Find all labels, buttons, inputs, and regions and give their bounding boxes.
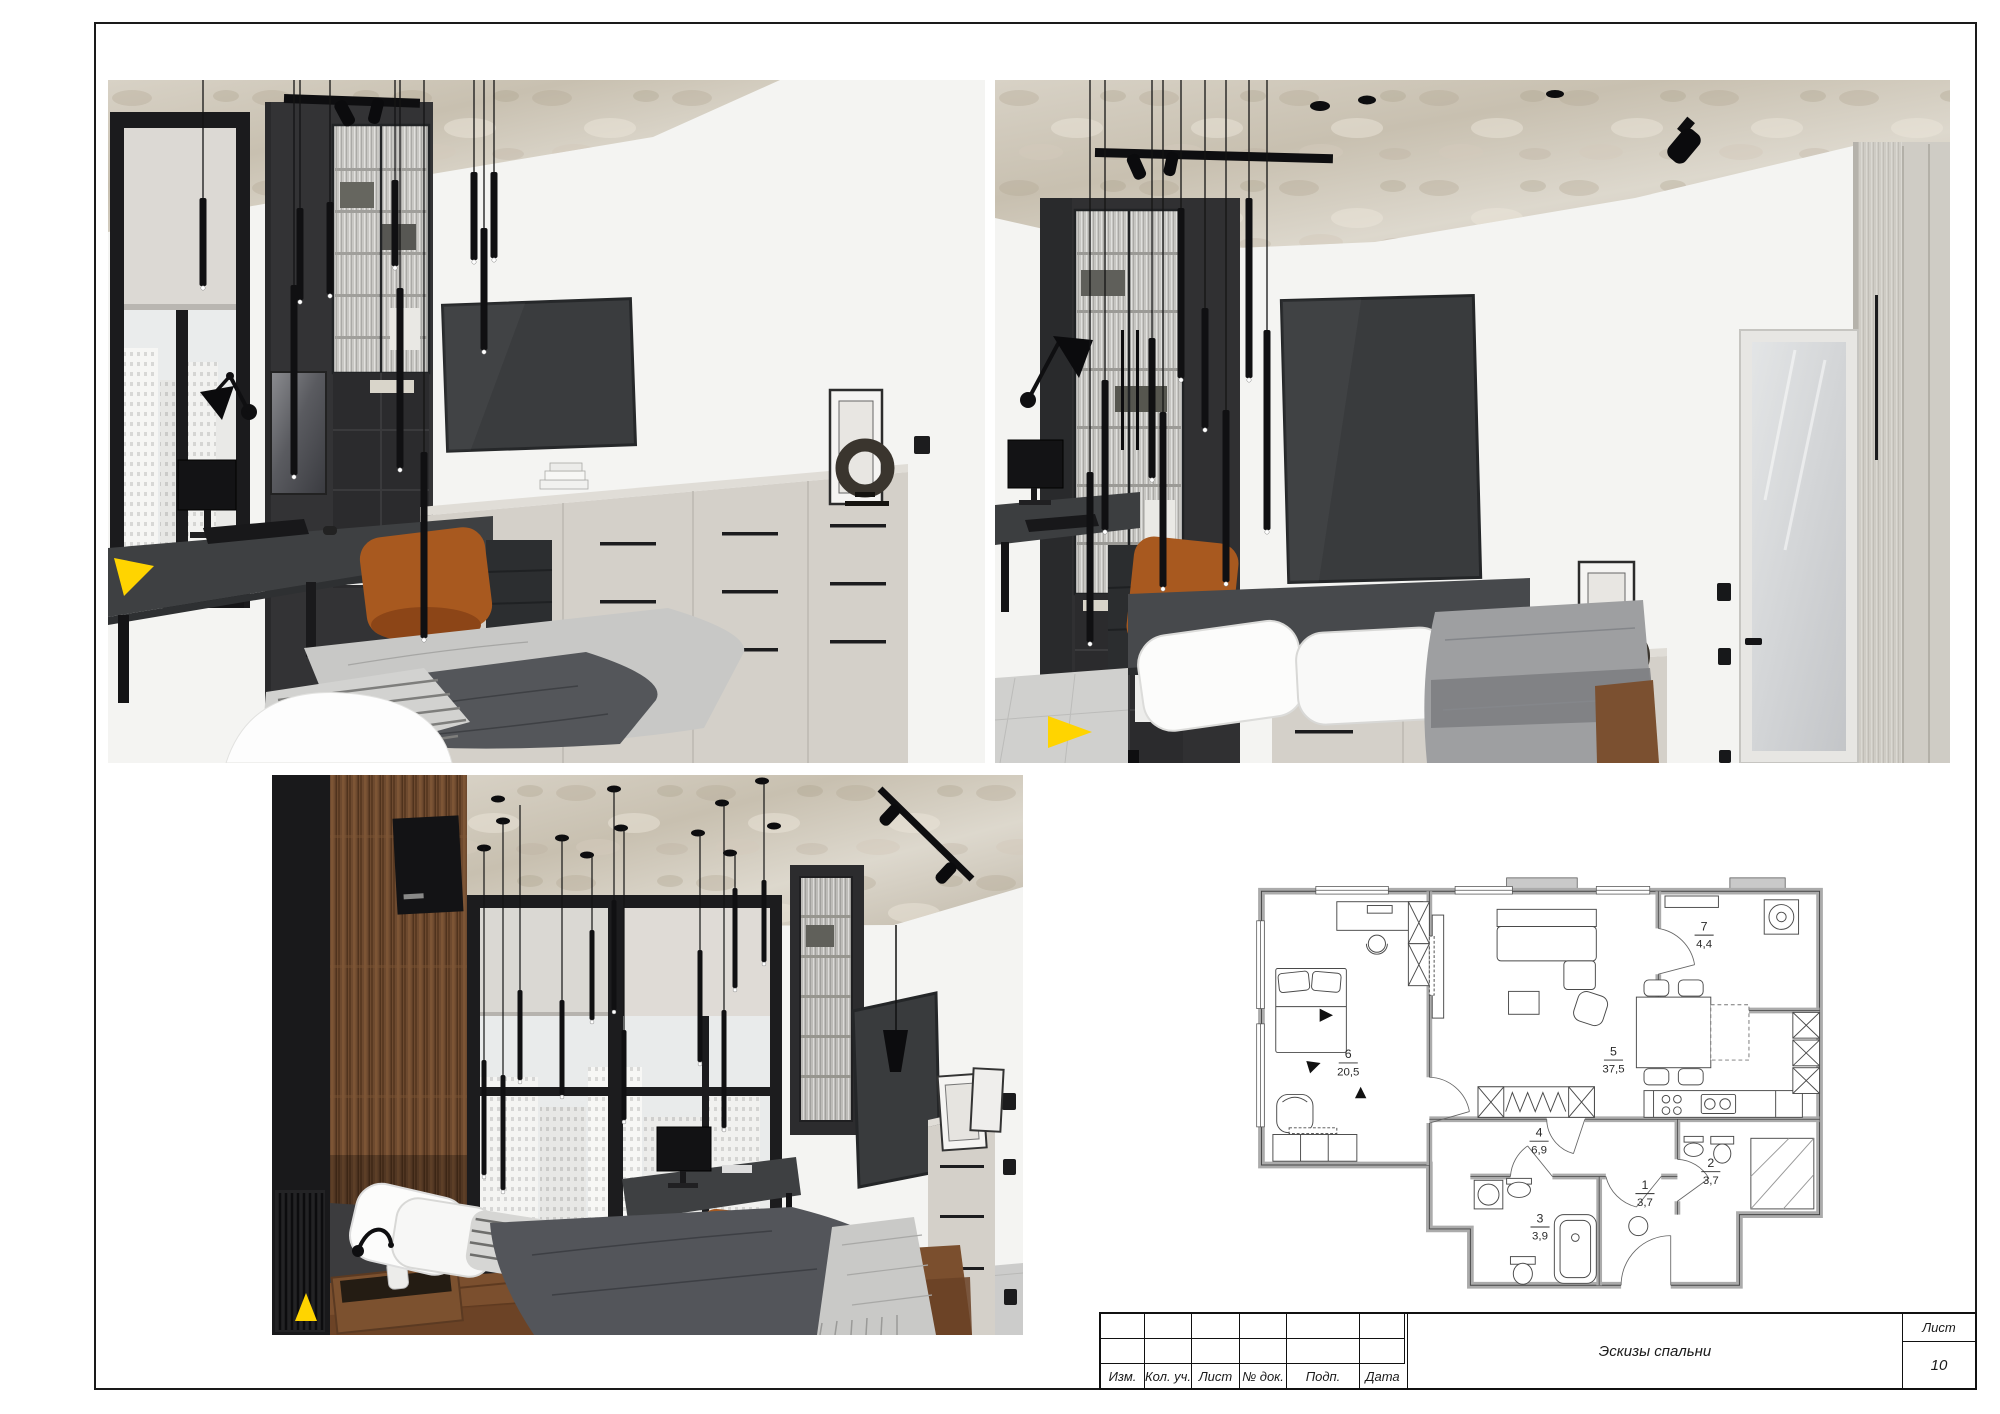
books-behind-glass [1081, 270, 1125, 296]
tb-cell [1101, 1314, 1145, 1339]
svg-text:20,5: 20,5 [1337, 1066, 1359, 1078]
tb-cell [1192, 1314, 1240, 1339]
svg-text:6,9: 6,9 [1531, 1145, 1547, 1157]
svg-text:4: 4 [1536, 1125, 1543, 1139]
svg-text:7: 7 [1701, 919, 1708, 933]
bookcase-edge [790, 865, 864, 1135]
tb-cell [1287, 1339, 1360, 1364]
svg-text:1: 1 [1642, 1178, 1649, 1192]
mirror-door [1740, 330, 1858, 763]
sheet-label: Лист [1903, 1314, 1975, 1342]
tb-col-doc: № док. [1240, 1364, 1287, 1388]
svg-text:3,9: 3,9 [1532, 1230, 1548, 1242]
tb-cell [1145, 1314, 1192, 1339]
light-switch [914, 436, 930, 454]
tb-cell [1240, 1339, 1287, 1364]
tb-cell [1360, 1339, 1405, 1364]
tv-panel [1281, 296, 1480, 583]
render-bedroom-view-3 [272, 775, 1023, 1335]
entry-furniture [1629, 1217, 1648, 1236]
svg-text:37,5: 37,5 [1602, 1063, 1624, 1075]
tb-cell [1101, 1339, 1145, 1364]
mouse [323, 526, 337, 535]
sheet-number: 10 [1903, 1342, 1975, 1388]
svg-text:4,4: 4,4 [1696, 939, 1713, 951]
tb-cell [1287, 1314, 1360, 1339]
svg-text:5: 5 [1610, 1044, 1617, 1058]
sheet-number-block: Лист 10 [1902, 1314, 1975, 1388]
black-column [272, 775, 330, 1335]
document-title: Эскизы спальни [1407, 1314, 1902, 1388]
tb-col-list: Лист [1192, 1364, 1240, 1388]
tb-col-data: Дата [1360, 1364, 1405, 1388]
svg-text:6: 6 [1345, 1047, 1352, 1061]
floor-plan: 6 20,5 5 37,5 7 4,4 4 6,9 3 3,9 2 3,7 [1243, 875, 1838, 1290]
render-bedroom-view-1 [108, 80, 985, 763]
wall-speaker [393, 815, 464, 914]
door-handle [1745, 638, 1762, 645]
tb-col-podp: Подп. [1287, 1364, 1360, 1388]
tb-cell [1360, 1314, 1405, 1339]
tb-cell [1192, 1339, 1240, 1364]
title-block: Изм. Кол. уч. Лист № док. Подп. Дата Эск… [1099, 1312, 1977, 1390]
tb-cell [1145, 1339, 1192, 1364]
wardrobe-panels [1853, 142, 1950, 763]
title-block-revision-grid: Изм. Кол. уч. Лист № док. Подп. Дата [1101, 1314, 1407, 1388]
svg-text:3,7: 3,7 [1703, 1175, 1719, 1187]
tb-col-kol-uch: Кол. уч. [1145, 1364, 1192, 1388]
svg-text:2: 2 [1707, 1156, 1714, 1170]
svg-text:3,7: 3,7 [1637, 1197, 1653, 1209]
render-bedroom-view-2 [995, 80, 1950, 763]
tb-cell [1240, 1314, 1287, 1339]
mirror [271, 372, 326, 494]
tile-floor [995, 668, 1128, 763]
tb-col-izm: Изм. [1101, 1364, 1145, 1388]
svg-text:3: 3 [1537, 1211, 1544, 1225]
tv-panel [443, 299, 636, 451]
